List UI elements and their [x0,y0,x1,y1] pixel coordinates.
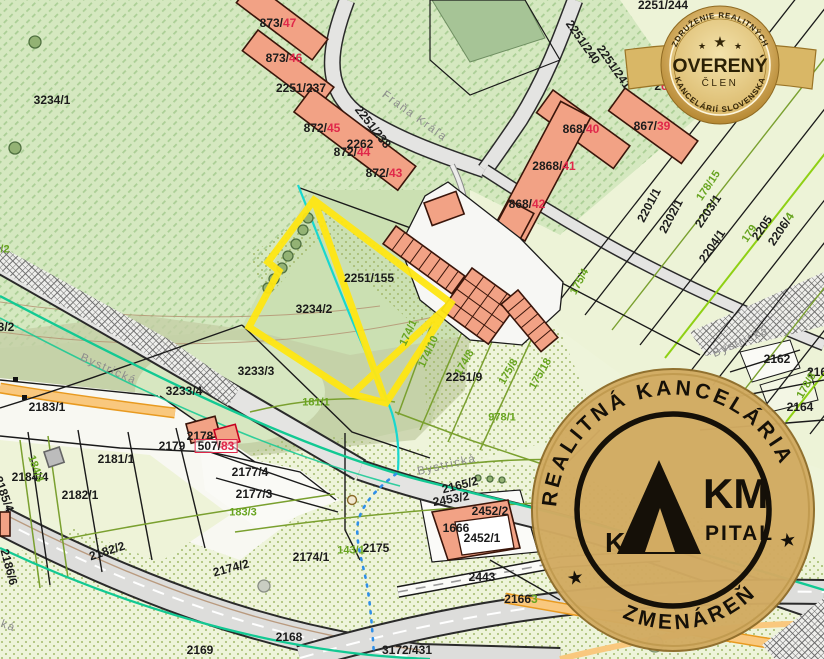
stamp-star-left: ★ [565,567,585,591]
badge-star-big: ★ [713,34,726,51]
badge-subtitle: ČLEN [702,76,739,89]
stamp-logo-km: KM [703,470,768,517]
manhole-symbol [348,496,357,505]
agency-stamp: REALITNÁ KANCELÁRIA ZMENÁREŇ ★ ★ K KM PI… [523,362,823,659]
cadastral-map-screenshot: Fraňa KráľaBystrickáBystrickáBystrickáká… [0,0,824,659]
stamp-star-right: ★ [778,529,798,553]
stamp-logo-pital: PITAL [705,522,774,545]
badge-star-left: ★ [698,41,706,51]
verified-member-badge: ZDRUŽENIE REALITNÝCH KANCELÁRIÍ SLOVENSK… [617,0,824,132]
badge-star-right: ★ [734,41,742,51]
badge-title: OVERENÝ [672,53,767,77]
